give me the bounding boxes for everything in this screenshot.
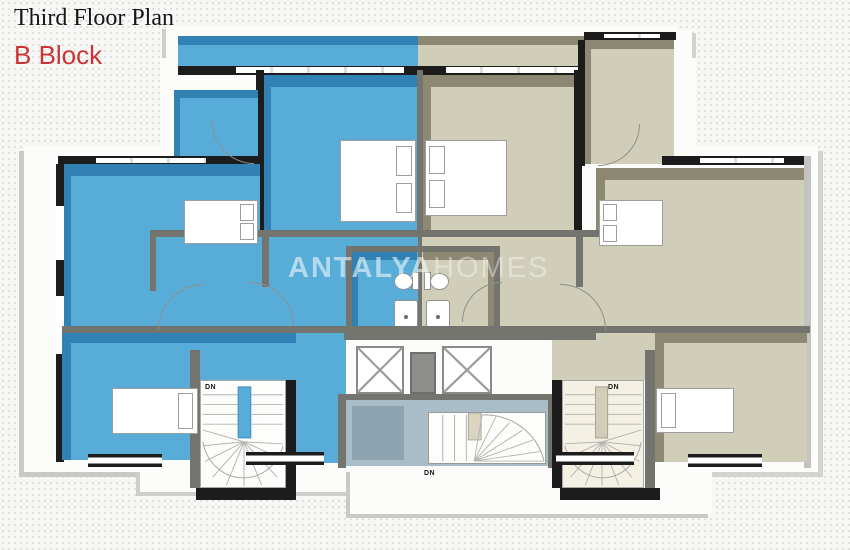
bed-living-right	[599, 200, 663, 246]
pillow	[240, 223, 254, 240]
pillow	[603, 204, 617, 221]
elevator-shaft	[410, 352, 436, 394]
terrace-edge-right	[560, 488, 660, 500]
wall-hall-stub-mid-left	[262, 237, 269, 287]
window-right-wing-top	[700, 158, 784, 163]
pillow	[429, 180, 445, 208]
elevator-right	[442, 346, 492, 394]
elevator-x-icon	[444, 348, 490, 392]
stair-label-right: DN	[608, 384, 619, 391]
pillow	[603, 225, 617, 242]
pillow	[429, 146, 445, 174]
spiral-stair-icon	[201, 381, 285, 487]
corridor-strip-right	[552, 333, 656, 380]
pillow	[396, 183, 412, 213]
toilet-right	[430, 273, 449, 290]
window-top-right-room	[604, 34, 660, 38]
page-title: Third Floor Plan	[14, 5, 174, 32]
spiral-stair-right	[562, 380, 644, 488]
pillow	[396, 146, 412, 176]
pillow	[178, 393, 193, 429]
window-sill-bottom	[88, 454, 162, 467]
pillow	[661, 393, 676, 428]
elevator-x-icon	[358, 348, 402, 392]
bed-bottom-right	[656, 388, 734, 433]
wall-stairwell-left	[338, 394, 346, 468]
window-left-wing-top	[96, 158, 206, 163]
wall-hall-stub-mid-right	[576, 237, 583, 287]
balcony-left	[178, 36, 418, 68]
bed-upper-left	[340, 140, 416, 222]
wall-stair-left-stub	[286, 380, 296, 488]
toilet-left	[394, 273, 413, 290]
window-sill-bottom	[688, 454, 762, 467]
wall-hall-stub-left	[150, 237, 156, 291]
stair-label-center: DN	[424, 470, 435, 477]
sink-right	[426, 300, 450, 328]
window-left-exterior-1	[56, 206, 64, 260]
elevator-left	[356, 346, 404, 394]
block-label: B Block	[14, 40, 102, 71]
spiral-stair-left	[200, 380, 286, 488]
stair-label-left: DN	[205, 384, 216, 391]
central-fan-stair	[428, 412, 546, 464]
window-sill-bottom	[246, 452, 324, 465]
toilet-tank-left	[412, 272, 419, 290]
bed-bottom-left	[112, 388, 198, 434]
wall-stair-right-stub	[552, 380, 562, 488]
wall-stair-right-outer	[645, 350, 655, 488]
spiral-stair-icon	[563, 381, 643, 487]
terrace-edge-left	[196, 488, 296, 500]
floor-plan-page: { "header": { "title": "Third Floor Plan…	[0, 0, 850, 550]
bed-living-left	[184, 200, 258, 244]
stairwell-landing	[352, 406, 404, 460]
pillow	[240, 204, 254, 221]
fan-stair-icon	[429, 413, 545, 463]
wall-top-right-room-left	[578, 40, 585, 166]
sink-left	[394, 300, 418, 328]
bed-upper-right	[425, 140, 507, 216]
window-sill-bottom	[556, 452, 634, 465]
wall-elevator-top	[344, 333, 596, 340]
